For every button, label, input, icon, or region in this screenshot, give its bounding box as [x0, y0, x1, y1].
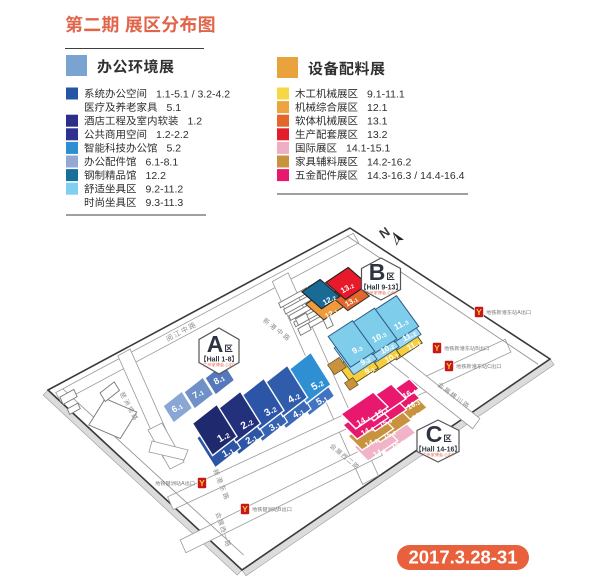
svg-text:13.1: 13.1 [367, 116, 388, 128]
svg-text:Y: Y [476, 307, 482, 317]
svg-text:9.1-11.1: 9.1-11.1 [367, 88, 405, 100]
svg-text:1.2-2.2: 1.2-2.2 [156, 129, 189, 141]
svg-text:1.2: 1.2 [188, 116, 203, 128]
svg-text:5.2: 5.2 [167, 143, 182, 155]
svg-text:13.2: 13.2 [367, 129, 388, 141]
svg-text:14.2-16.2: 14.2-16.2 [367, 156, 412, 168]
svg-text:14.1-15.1: 14.1-15.1 [346, 143, 391, 155]
svg-text:B: B [475, 346, 479, 352]
svg-text:2017.3.28-31: 2017.3.28-31 [408, 547, 517, 568]
svg-text:6.1-8.1: 6.1-8.1 [146, 156, 179, 168]
svg-text:Y: Y [199, 478, 205, 488]
svg-text:5.1: 5.1 [167, 102, 182, 114]
svg-text:A: A [517, 310, 521, 316]
svg-text:12.1: 12.1 [367, 102, 388, 114]
svg-text:A: A [181, 481, 185, 487]
svg-text:N: N [376, 224, 392, 242]
svg-text:B: B [369, 259, 386, 285]
svg-text:Y: Y [242, 504, 248, 514]
svg-text:B: B [278, 507, 282, 513]
svg-text:1.1-5.1 / 3.2-4.2: 1.1-5.1 / 3.2-4.2 [156, 88, 230, 100]
svg-text:C: C [426, 421, 443, 447]
svg-text:C: C [487, 364, 491, 370]
svg-text:Y: Y [446, 361, 452, 371]
svg-text:12.2: 12.2 [146, 170, 167, 182]
svg-text:9.2-11.2: 9.2-11.2 [146, 184, 184, 196]
svg-text:·CIFF: ·CIFF [443, 452, 454, 457]
svg-text:14.3-16.3 / 14.4-16.4: 14.3-16.3 / 14.4-16.4 [367, 170, 465, 182]
svg-text:Y: Y [434, 343, 440, 353]
svg-text:·CIFF: ·CIFF [224, 362, 235, 367]
svg-text:·CIFF: ·CIFF [386, 290, 397, 295]
svg-text:A: A [207, 331, 224, 357]
svg-text:9.3-11.3: 9.3-11.3 [146, 197, 184, 209]
